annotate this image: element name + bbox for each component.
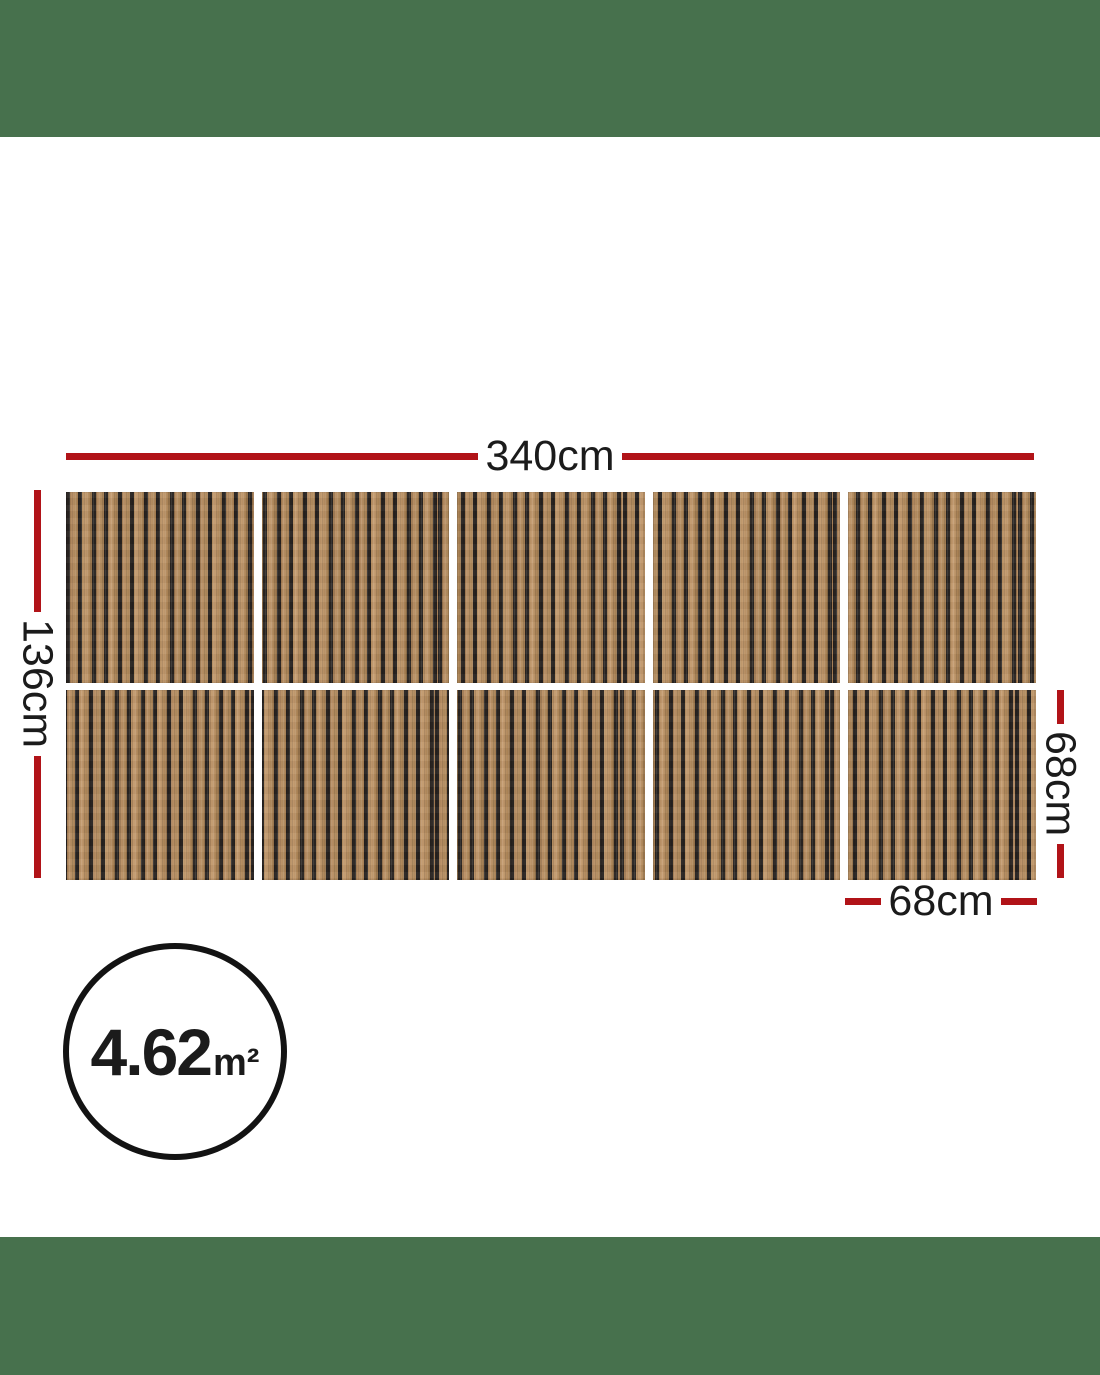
wood-panel [848,690,1036,881]
wood-panel [457,690,645,881]
wood-panel [262,690,450,881]
green-band-top [0,0,1100,137]
total-height-label: 136cm [16,616,59,751]
dimension-line-bottom [34,756,41,878]
panel-grid [66,492,1036,880]
dimension-total-height: 136cm [17,490,57,878]
wood-panel [66,492,254,683]
area-text: 4.62 m² [91,1019,260,1085]
dimension-total-width: 340cm [66,434,1034,478]
wood-panel [262,492,450,683]
dimension-line-top [1057,690,1064,724]
area-badge: 4.62 m² [63,943,287,1160]
wood-panel [653,492,841,683]
wood-panel [457,492,645,683]
dimension-panel-height: 68cm [1040,690,1080,878]
wood-panel [653,690,841,881]
panel-height-label: 68cm [1039,728,1082,839]
dimension-line-left [845,898,881,905]
dimension-line-left [66,453,478,460]
dimension-line-bottom [1057,844,1064,878]
product-dimension-diagram: 340cm 136cm 68cm 68cm 4.62 m² [0,0,1100,1375]
dimension-line-right [622,453,1034,460]
dimension-panel-width: 68cm [845,879,1037,923]
panel-width-label: 68cm [885,880,996,923]
area-value: 4.62 [91,1019,211,1085]
wood-panel [848,492,1036,683]
dimension-line-top [34,490,41,612]
total-width-label: 340cm [482,435,617,478]
area-unit: m² [213,1044,259,1082]
wood-panel [66,690,254,881]
dimension-line-right [1001,898,1037,905]
green-band-bottom [0,1237,1100,1375]
